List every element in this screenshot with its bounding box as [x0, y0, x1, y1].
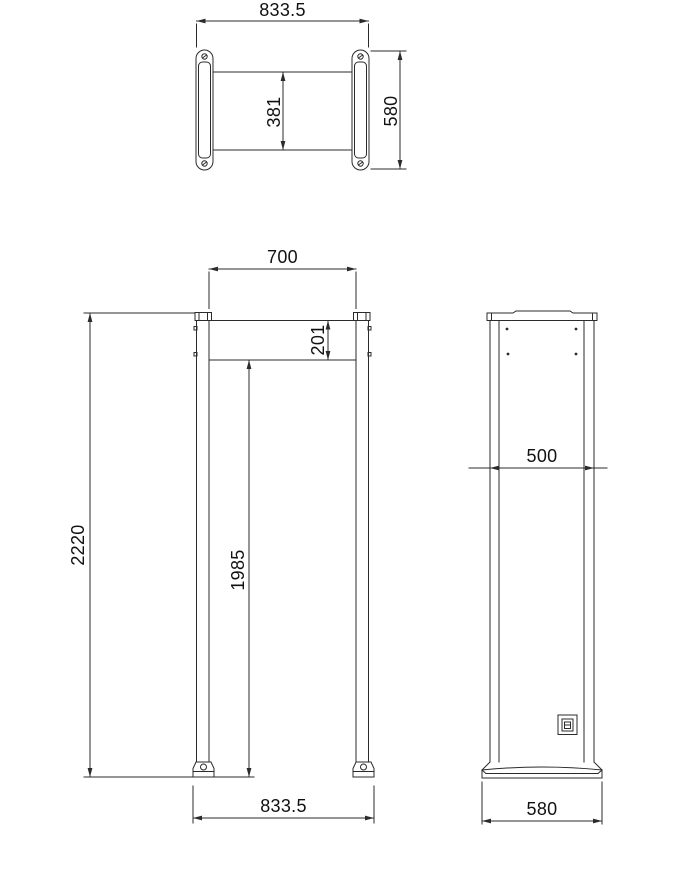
- base-flare: [594, 762, 602, 770]
- screw-slash: [203, 162, 206, 164]
- anchor-hole-icon: [361, 764, 367, 770]
- dim-label-tunnel-width: 700: [267, 247, 298, 267]
- dim-label-base-depth: 580: [527, 799, 558, 819]
- base-flare: [482, 762, 490, 770]
- corner-screw-icon: [194, 353, 197, 357]
- dim-label-column-depth: 580: [381, 96, 401, 127]
- dim-label-tunnel-height: 1985: [228, 549, 248, 590]
- column-inner-outline: [355, 62, 367, 158]
- column-foot: [353, 762, 374, 777]
- arrowhead: [209, 267, 218, 272]
- front-view: 700: [68, 247, 374, 823]
- dim-label-overall-width: 833.5: [259, 0, 306, 20]
- arrowhead: [360, 19, 369, 24]
- arrowhead: [347, 267, 356, 272]
- front-left-column: [193, 313, 214, 778]
- column-foot: [193, 762, 214, 777]
- corner-screw-icon: [506, 328, 509, 331]
- top-left-column: [196, 50, 213, 170]
- corner-screw-icon: [194, 327, 197, 331]
- arrowhead: [365, 816, 374, 821]
- corner-screw-icon: [368, 353, 371, 357]
- cap-top-edge: [487, 311, 597, 313]
- dim-overall-height: 2220: [68, 313, 195, 777]
- arrowhead: [585, 466, 594, 471]
- base-chamfer: [482, 770, 486, 774]
- base-chamfer: [598, 770, 602, 774]
- corner-screw-icon: [575, 353, 578, 356]
- arrowhead: [482, 819, 491, 824]
- column-top-cap: [354, 313, 371, 321]
- dim-tunnel-height: 1985: [228, 360, 251, 777]
- dim-label-tunnel-depth: 381: [264, 97, 284, 128]
- screw-slash: [203, 55, 206, 57]
- arrowhead: [398, 160, 403, 169]
- dim-top-column-depth: 580: [371, 51, 406, 169]
- dim-front-overall-width: 833.5: [193, 786, 374, 823]
- arrowhead: [247, 360, 252, 369]
- corner-screw-icon: [575, 328, 578, 331]
- screw-slash: [359, 55, 362, 57]
- column-top-cap: [195, 313, 212, 321]
- header-crossbar: [209, 321, 356, 361]
- arrowhead: [197, 19, 206, 24]
- side-view: 500 580: [469, 311, 607, 824]
- top-view: 833.5 381: [196, 0, 406, 170]
- dim-top-overall-width: 833.5: [197, 0, 369, 47]
- column-inner-outline: [199, 62, 211, 158]
- dim-label-header-height: 201: [308, 325, 328, 356]
- dim-label-front-overall-width: 833.5: [260, 796, 307, 816]
- arrowhead: [398, 51, 403, 60]
- side-top-cap: [487, 311, 597, 321]
- dim-header-height: 201: [308, 321, 330, 361]
- arrowhead: [281, 141, 286, 150]
- power-inlet-icon: [558, 715, 577, 735]
- dim-tunnel-depth: 381: [264, 72, 285, 150]
- arrowhead: [88, 768, 93, 777]
- anchor-hole-icon: [201, 764, 207, 770]
- corner-screw-icon: [507, 353, 510, 356]
- technical-drawing: 833.5 381: [0, 0, 680, 876]
- dim-side-base-depth: 580: [482, 782, 602, 824]
- side-base: [482, 762, 602, 778]
- arrowhead: [193, 816, 202, 821]
- front-right-column: [353, 313, 374, 778]
- arrowhead: [281, 72, 286, 81]
- arrowhead: [247, 768, 252, 777]
- base-top-edge: [482, 767, 602, 770]
- dim-front-tunnel-width: 700: [209, 247, 356, 309]
- screw-slash: [359, 162, 362, 164]
- arrowhead: [88, 313, 93, 322]
- dim-label-side-column-width: 500: [527, 446, 558, 466]
- arrowhead: [593, 819, 602, 824]
- top-right-column: [352, 50, 369, 170]
- arrowhead: [490, 466, 499, 471]
- side-panel-body: [490, 321, 594, 763]
- corner-screw-icon: [368, 327, 371, 331]
- dim-label-overall-height: 2220: [68, 524, 88, 565]
